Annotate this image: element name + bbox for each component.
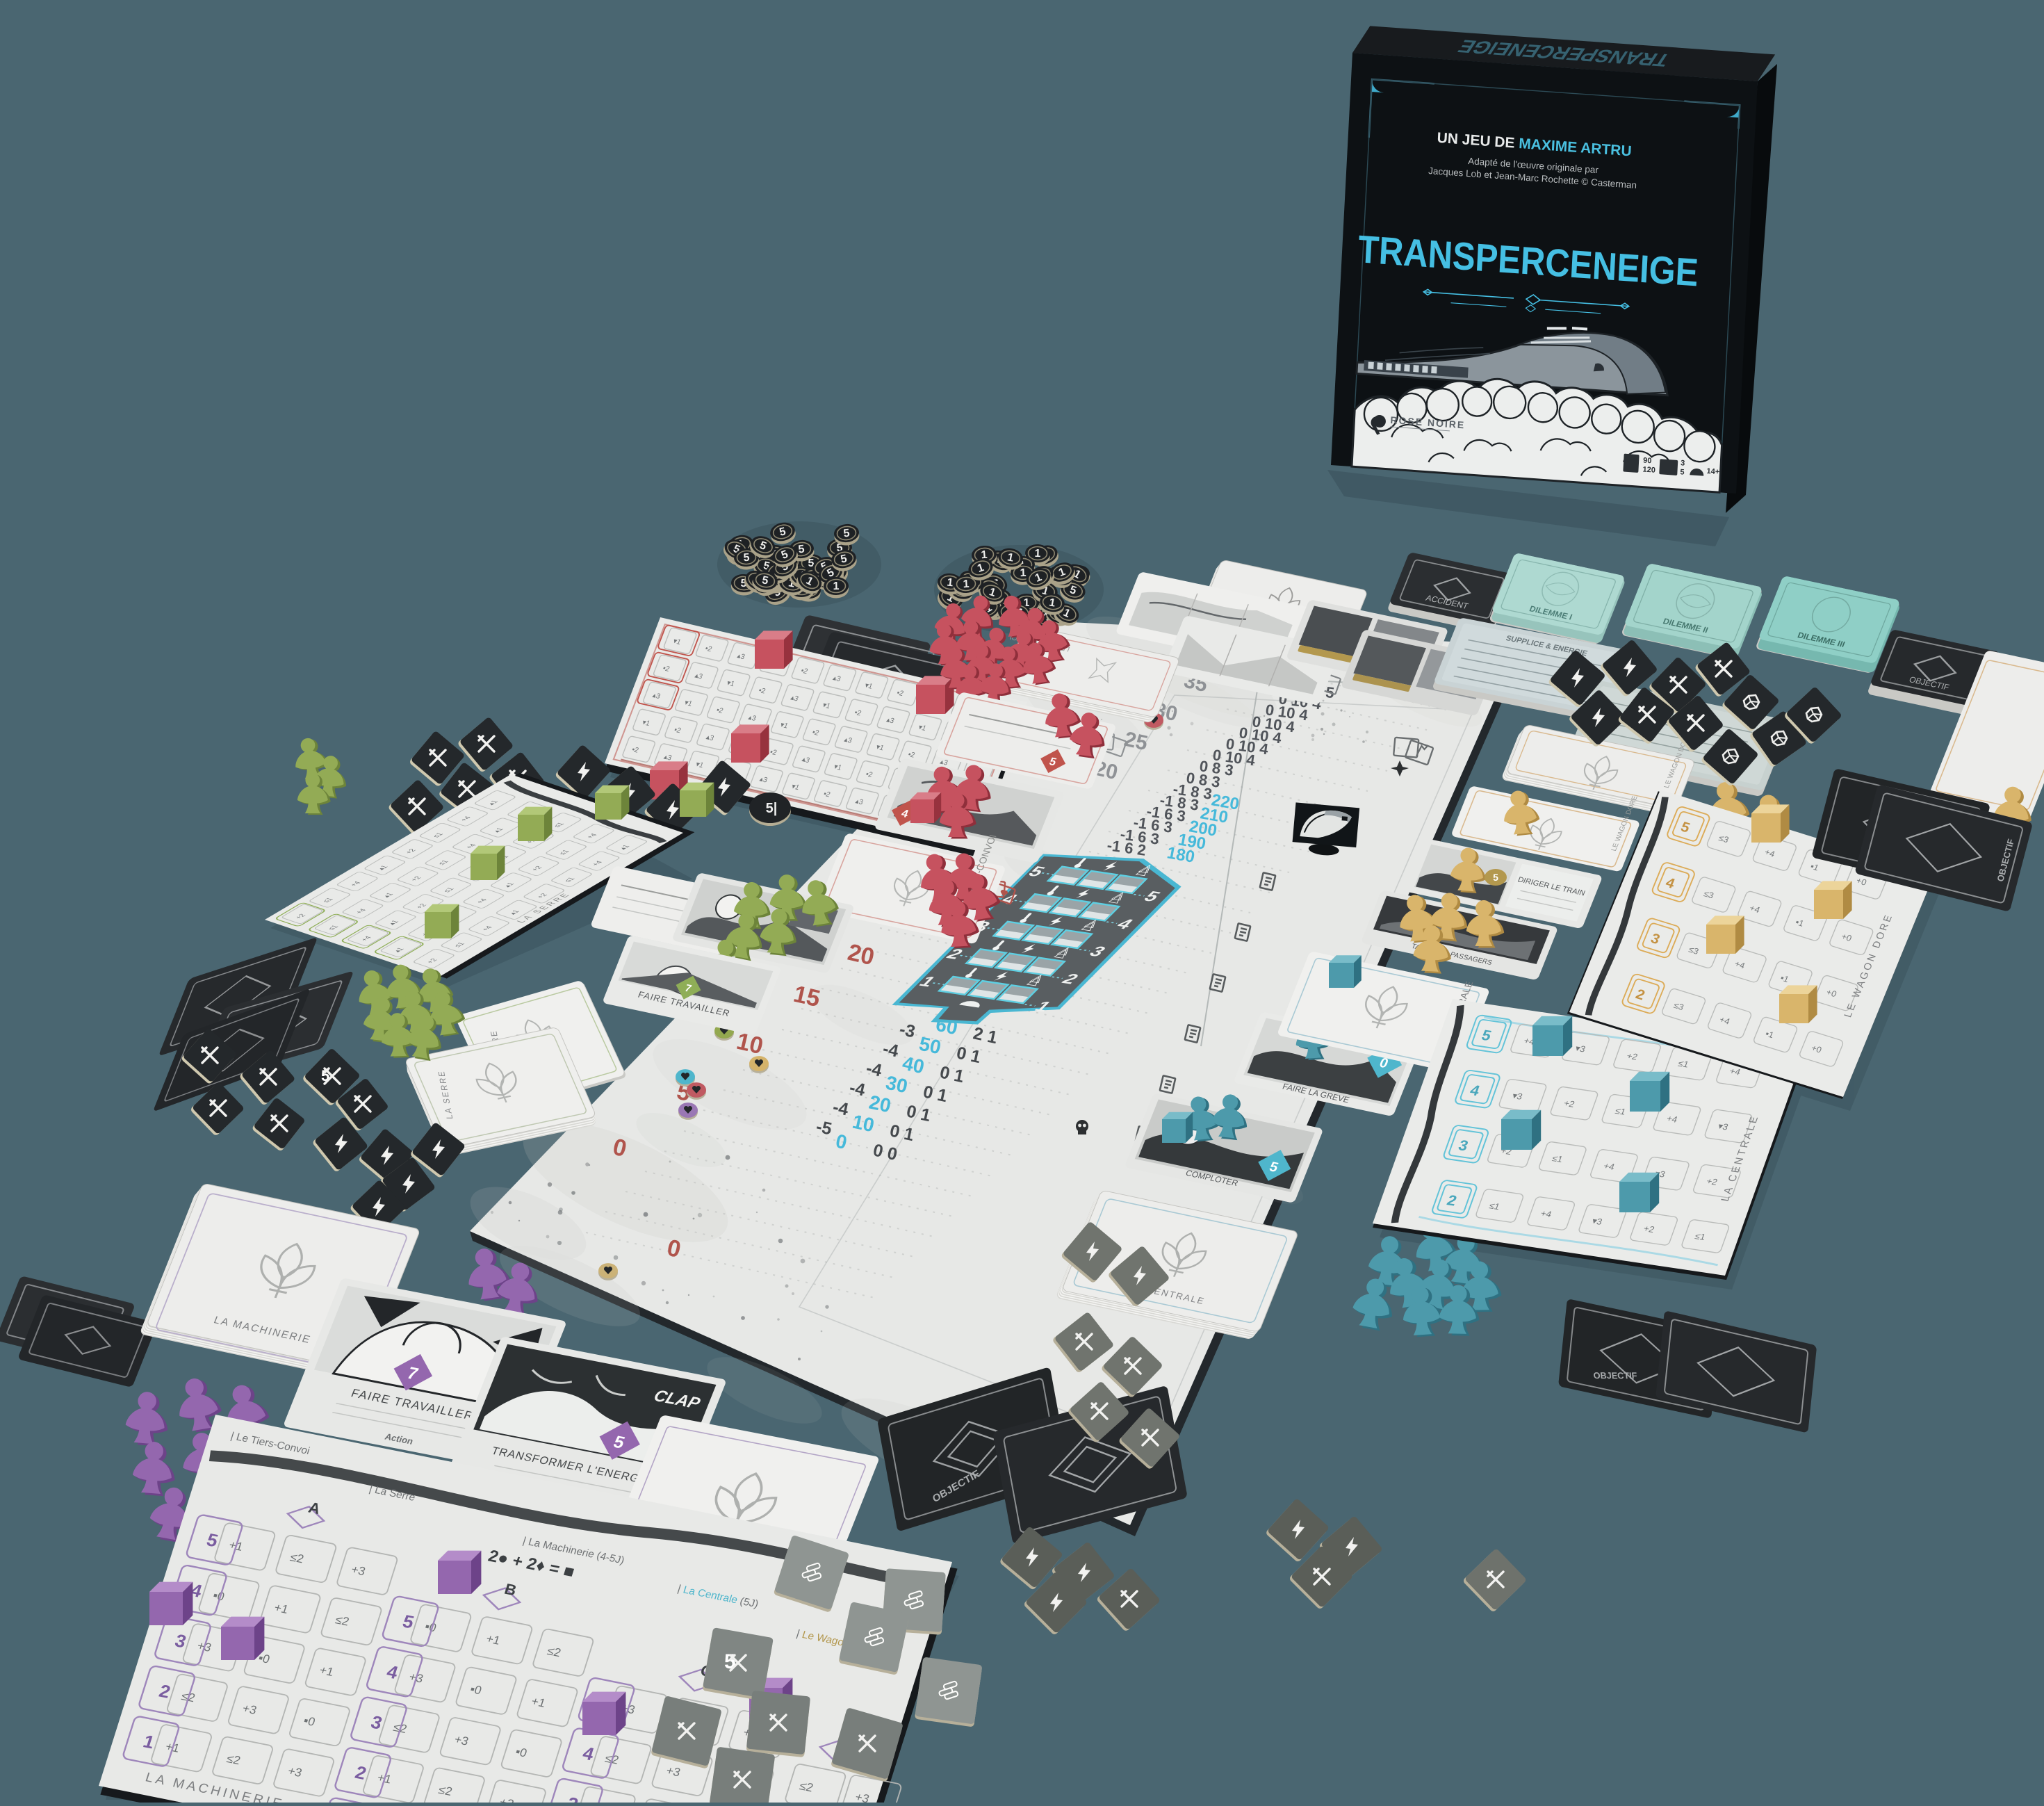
svg-text:1: 1	[1020, 567, 1027, 579]
svg-text:3: 3	[1681, 459, 1685, 467]
svg-text:20: 20	[867, 1091, 893, 1117]
svg-text:1: 1	[963, 578, 970, 590]
svg-text:5: 5	[743, 552, 750, 564]
svg-text:5: 5	[798, 544, 806, 556]
svg-text:5|: 5|	[766, 801, 778, 816]
svg-text:5: 5	[843, 528, 851, 540]
svg-text:5: 5	[1680, 468, 1685, 476]
svg-text:50: 50	[917, 1033, 943, 1059]
svg-text:14+: 14+	[1706, 467, 1719, 476]
svg-text:30: 30	[884, 1072, 910, 1098]
svg-text:10: 10	[851, 1111, 876, 1137]
svg-text:1: 1	[1034, 548, 1041, 560]
svg-text:1: 1	[833, 580, 839, 592]
svg-text:OBJECTIF: OBJECTIF	[1593, 1370, 1638, 1381]
svg-text:90: 90	[1643, 457, 1652, 466]
svg-text:5: 5	[1493, 872, 1498, 883]
svg-text:40: 40	[901, 1052, 926, 1078]
svg-text:120: 120	[1642, 465, 1655, 474]
